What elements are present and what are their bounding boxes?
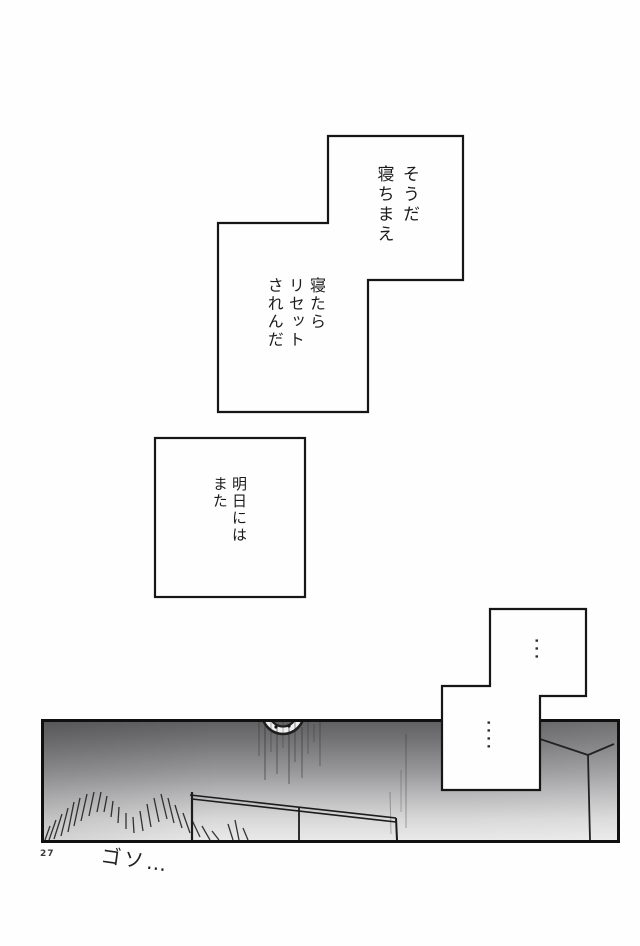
manga-page: そうだ 寝ちまえ 寝たら リセット されんだ 明日には また ... .... … xyxy=(0,0,640,946)
ellipsis-bottom: .... xyxy=(484,720,499,752)
page-number: 27 xyxy=(40,849,55,859)
speech-bubbles-layer xyxy=(0,0,640,946)
ellipsis-top: ... xyxy=(532,638,547,662)
speech-text-3: 明日には また xyxy=(210,476,248,544)
speech-bubble-1-2 xyxy=(218,136,463,412)
speech-text-2: 寝たら リセット されんだ xyxy=(264,277,327,349)
speech-text-1: そうだ 寝ちまえ xyxy=(370,165,421,245)
speech-bubble-4 xyxy=(442,609,586,790)
